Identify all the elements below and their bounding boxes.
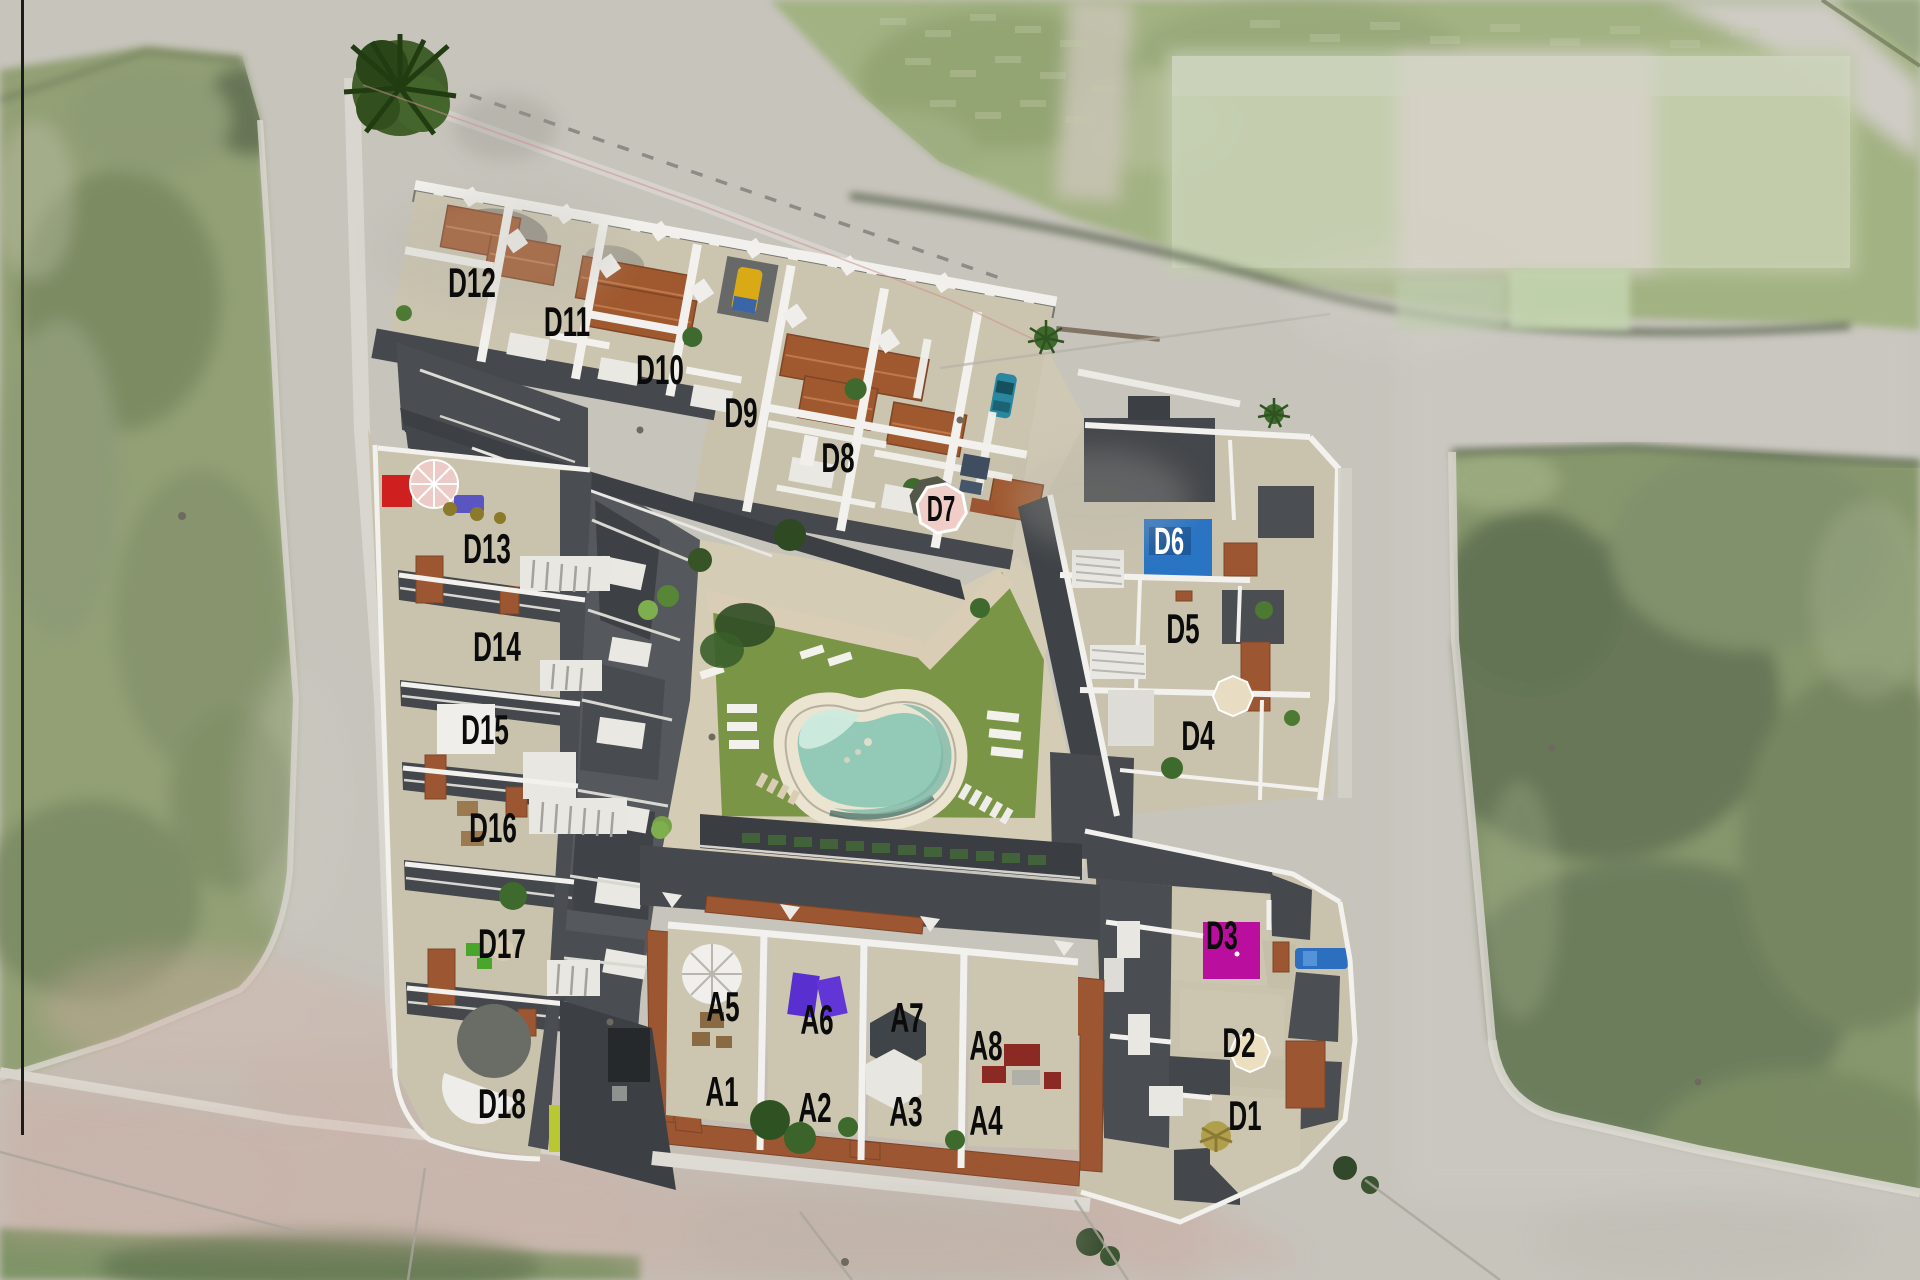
svg-text:A2: A2 [798, 1085, 831, 1132]
svg-text:A7: A7 [890, 995, 923, 1042]
svg-text:D8: D8 [821, 435, 854, 482]
svg-text:D18: D18 [478, 1081, 526, 1128]
svg-text:A8: A8 [969, 1023, 1002, 1070]
svg-text:D13: D13 [463, 526, 511, 573]
svg-text:D5: D5 [1166, 606, 1199, 653]
svg-text:D2: D2 [1222, 1020, 1255, 1067]
svg-text:D17: D17 [478, 921, 526, 968]
svg-text:A5: A5 [706, 984, 739, 1031]
svg-text:D4: D4 [1181, 713, 1215, 760]
svg-text:D7: D7 [927, 490, 956, 530]
svg-text:D11: D11 [544, 299, 590, 346]
svg-text:D12: D12 [448, 260, 496, 307]
svg-text:A6: A6 [800, 997, 833, 1044]
svg-text:D9: D9 [724, 390, 757, 437]
svg-text:D6: D6 [1154, 519, 1184, 562]
svg-text:D10: D10 [636, 347, 684, 394]
svg-text:D1: D1 [1228, 1093, 1261, 1140]
svg-text:D16: D16 [469, 805, 517, 852]
svg-text:A3: A3 [889, 1089, 922, 1136]
svg-text:D3: D3 [1206, 914, 1238, 958]
svg-text:D15: D15 [461, 707, 509, 754]
svg-text:A1: A1 [705, 1069, 738, 1116]
svg-text:A4: A4 [969, 1098, 1003, 1145]
svg-text:D14: D14 [473, 624, 521, 671]
